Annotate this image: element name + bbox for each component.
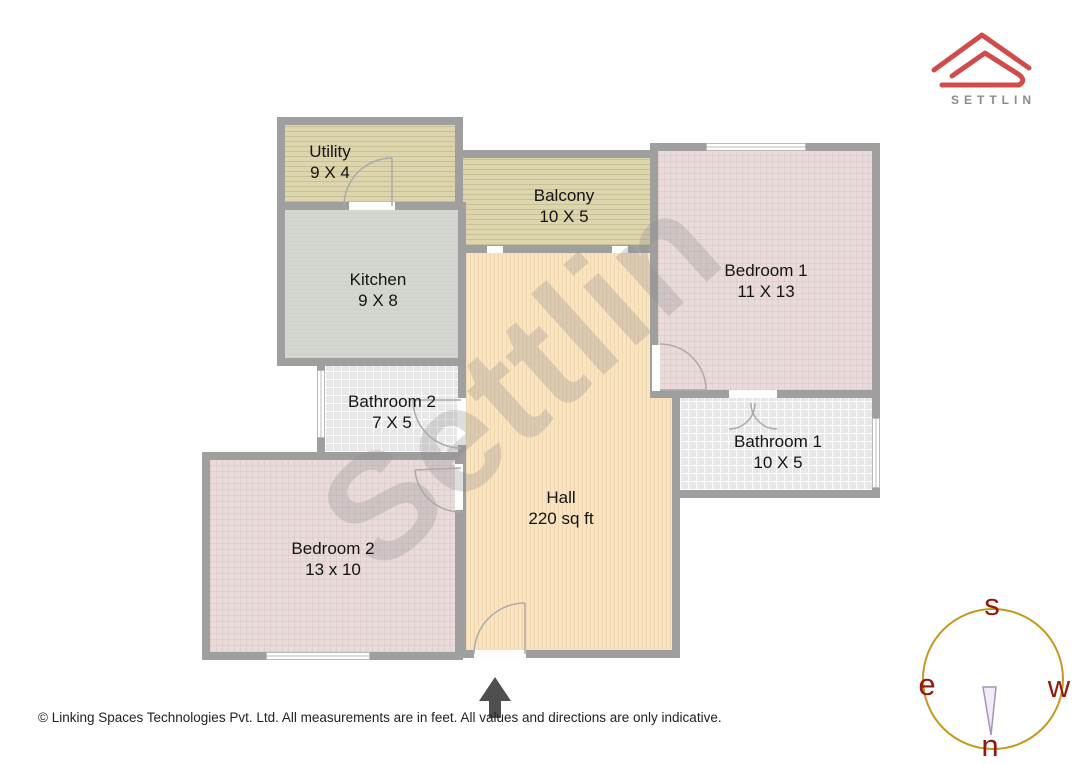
compass-west-label: w [1043, 671, 1075, 703]
room-name: Utility [255, 141, 405, 162]
room-name: Bathroom 2 [317, 391, 467, 412]
label-utility: Utility 9 X 4 [255, 141, 405, 183]
room-dims: 9 X 4 [255, 162, 405, 183]
room-dims: 9 X 8 [303, 290, 453, 311]
settlin-logo-icon [928, 30, 1036, 92]
copyright-text: © Linking Spaces Technologies Pvt. Ltd. … [38, 710, 722, 725]
compass-east-label: e [911, 669, 943, 701]
room-name: Kitchen [303, 269, 453, 290]
bedroom2-window [266, 652, 370, 660]
label-bathroom2: Bathroom 2 7 X 5 [317, 391, 467, 433]
room-dims: 13 x 10 [258, 559, 408, 580]
label-kitchen: Kitchen 9 X 8 [303, 269, 453, 311]
bathroom1-door-opening [729, 390, 777, 398]
brand-name: SETTLIN [946, 93, 1041, 107]
label-hall: Hall 220 sq ft [486, 487, 636, 529]
utility-door-opening [349, 202, 395, 210]
room-name: Bathroom 1 [703, 431, 853, 452]
room-name: Bedroom 1 [691, 260, 841, 281]
label-bedroom1: Bedroom 1 11 X 13 [691, 260, 841, 302]
room-dims: 10 X 5 [489, 206, 639, 227]
balcony-door-jamb-left [487, 246, 503, 253]
compass-north-label: n [974, 730, 1006, 762]
roof-logo-icon [928, 30, 1036, 92]
compass-south-label: s [976, 589, 1008, 621]
room-dims: 11 X 13 [691, 281, 841, 302]
room-name: Hall [486, 487, 636, 508]
room-dims: 10 X 5 [703, 452, 853, 473]
label-bathroom1: Bathroom 1 10 X 5 [703, 431, 853, 473]
room-name: Balcony [489, 185, 639, 206]
floorplan-page: SETTLIN Settlin Utility 9 X 4 Kitch [0, 0, 1080, 764]
entrance-opening [474, 650, 526, 658]
room-dims: 220 sq ft [486, 508, 636, 529]
room-dims: 7 X 5 [317, 412, 467, 433]
bathroom1-window [872, 418, 880, 488]
room-name: Bedroom 2 [258, 538, 408, 559]
label-balcony: Balcony 10 X 5 [489, 185, 639, 227]
label-bedroom2: Bedroom 2 13 x 10 [258, 538, 408, 580]
